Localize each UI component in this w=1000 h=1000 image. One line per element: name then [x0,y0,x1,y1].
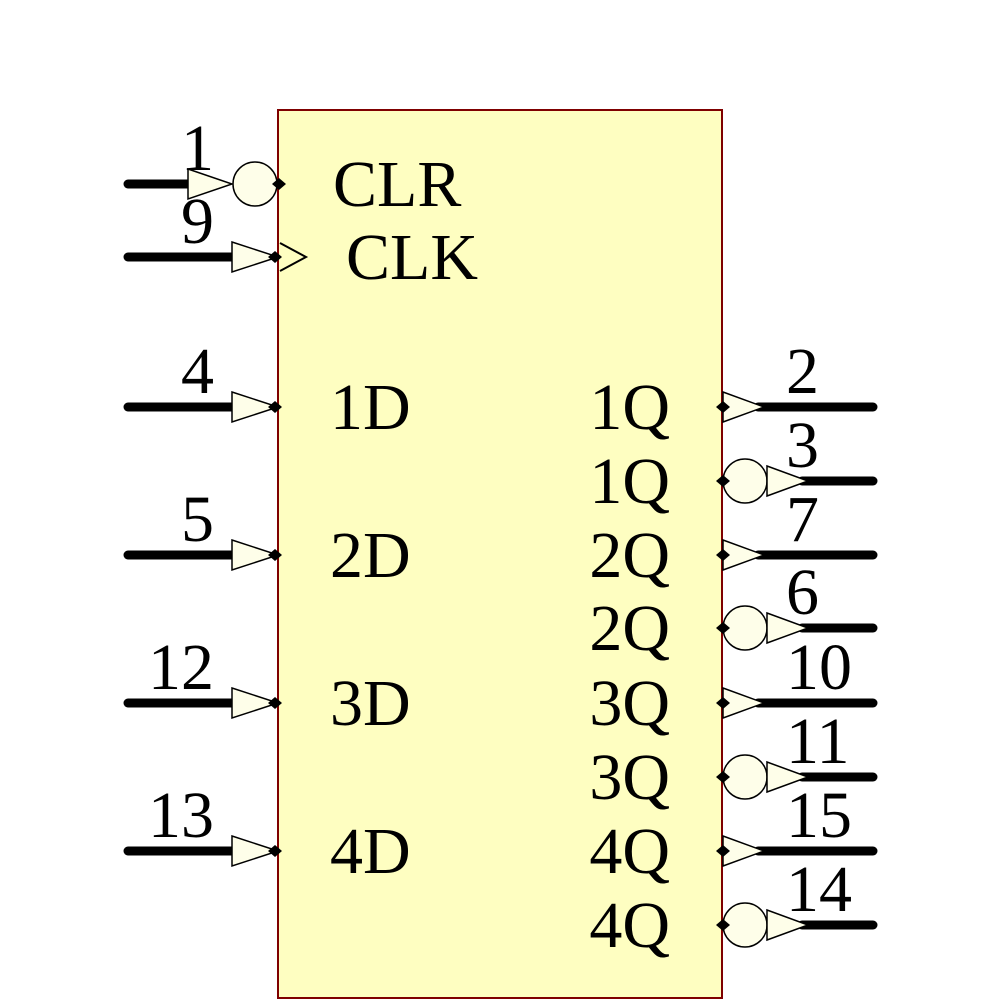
pin-number: 5 [181,483,214,556]
pin-number: 6 [786,556,819,629]
schematic-canvas: 1CLR9CLK41D52D123D134D21Q31Q72Q62Q103Q11… [0,0,1000,1000]
pin-number: 3 [786,409,819,482]
pin-label: 1Q [589,371,670,444]
pin-label: 3D [330,667,411,740]
pin-number: 15 [786,779,852,852]
pin-label: 3Q [589,667,670,740]
pin-number: 4 [181,335,214,408]
ic-symbol-quad-d-flip-flop[interactable]: 1CLR9CLK41D52D123D134D21Q31Q72Q62Q103Q11… [0,0,1000,1000]
pin-label: 1Q [589,445,670,518]
pin-label: 2Q [589,592,670,665]
pin-number: 9 [181,185,214,258]
pin-label: CLR [333,148,461,221]
pin-number: 7 [786,483,819,556]
pin-number: 2 [786,335,819,408]
pin-label: 1D [330,371,411,444]
pin-number: 11 [786,705,850,778]
pin-label: 2D [330,519,411,592]
inversion-bubble-icon [233,162,277,206]
pin-number: 1 [181,112,214,185]
pin-number: 10 [786,631,852,704]
pin-label: 4Q [589,889,670,962]
pin-number: 13 [148,779,214,852]
pin-label: 4Q [589,815,670,888]
pin-number: 14 [786,853,852,926]
pin-label: 3Q [589,741,670,814]
pin-number: 12 [148,631,214,704]
pin-label: CLK [346,221,478,294]
pin-label: 2Q [589,519,670,592]
pin-label: 4D [330,815,411,888]
